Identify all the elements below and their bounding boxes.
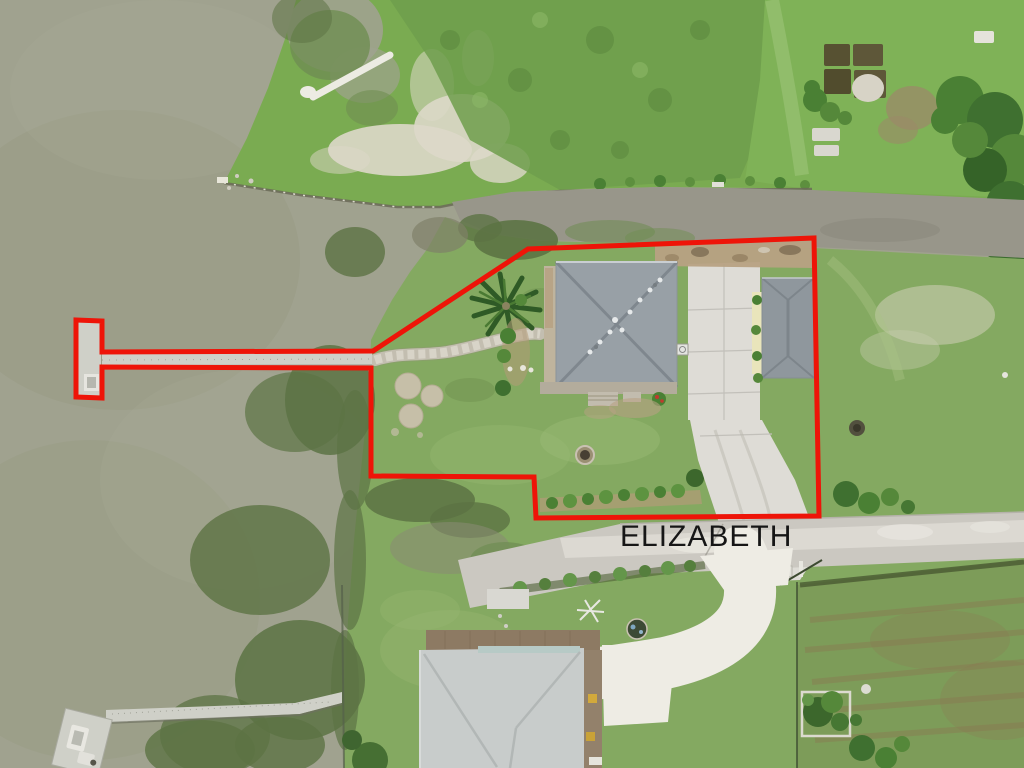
fire-pit	[575, 445, 595, 465]
neighbor-deck-right	[584, 650, 602, 768]
neighbor-roof	[420, 648, 584, 768]
aerial-scene	[0, 0, 1024, 768]
neighbor-house	[420, 630, 602, 768]
garden-fountain	[627, 619, 647, 639]
street-name-label: ELIZABETH	[620, 522, 792, 552]
white-bench	[974, 31, 994, 43]
garage	[751, 278, 814, 383]
ac-unit	[677, 344, 688, 355]
deck-chair-yellow	[588, 694, 597, 703]
aerial-property-photo: ELIZABETH	[0, 0, 1024, 768]
